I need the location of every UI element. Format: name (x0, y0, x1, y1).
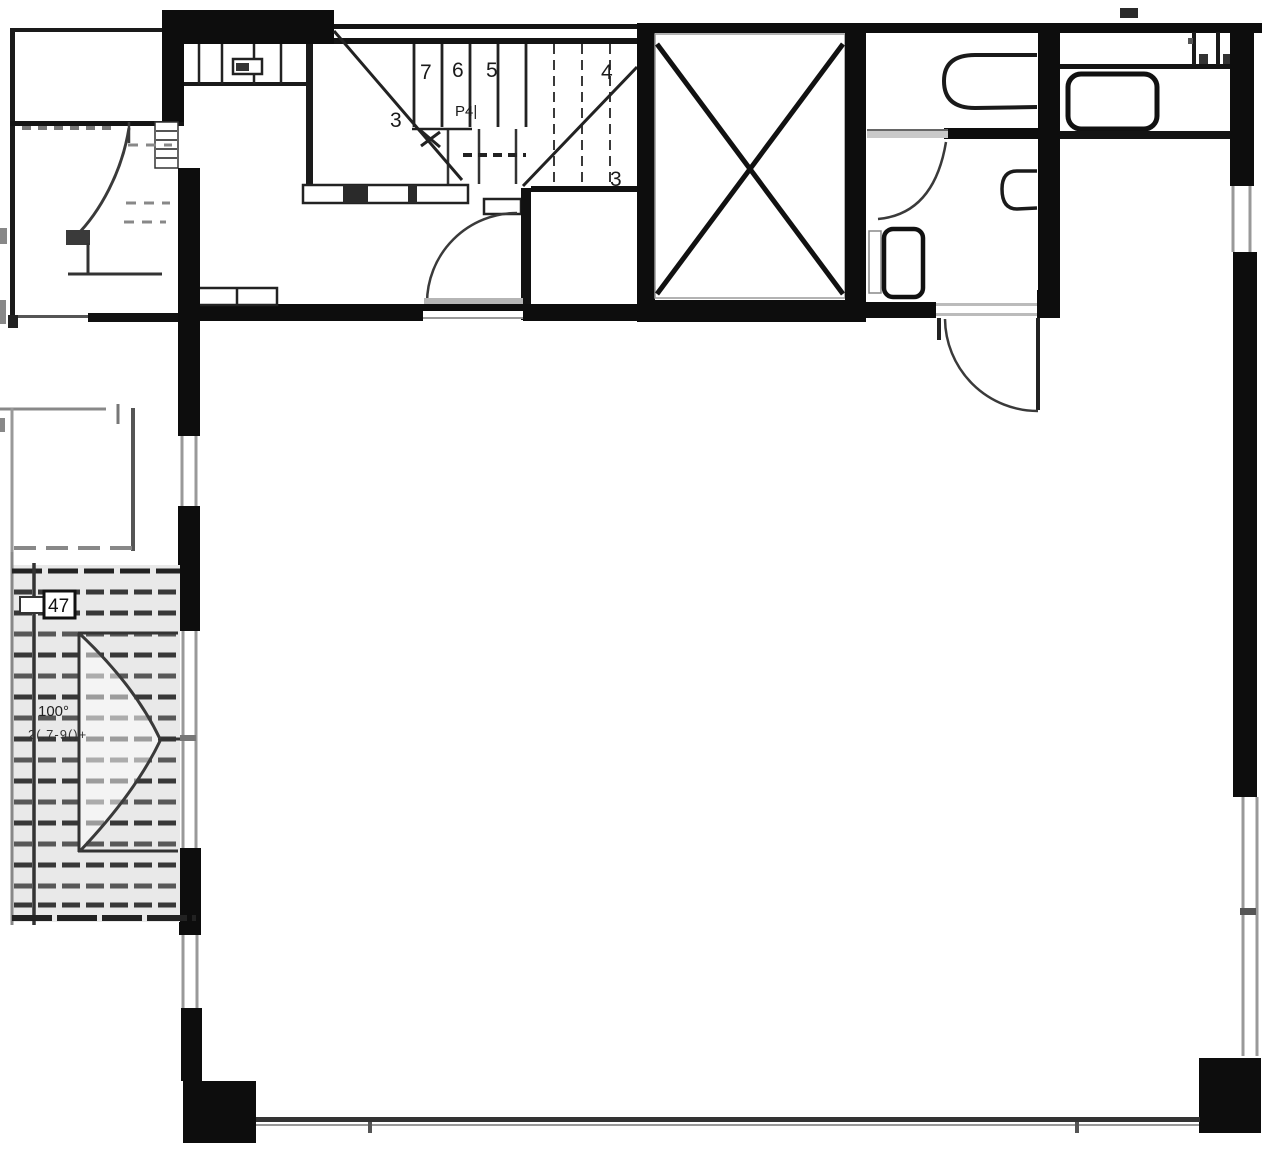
svg-text:6: 6 (452, 59, 464, 82)
svg-text:2(.7-9()+: 2(.7-9()+ (28, 727, 87, 742)
svg-text:P4|: P4| (455, 103, 477, 120)
svg-text:47: 47 (48, 596, 69, 617)
svg-text:4: 4 (601, 61, 613, 84)
svg-text:100°: 100° (38, 703, 69, 720)
svg-text:7: 7 (420, 61, 432, 84)
svg-text:3: 3 (390, 109, 402, 132)
svg-text:5: 5 (486, 59, 498, 82)
